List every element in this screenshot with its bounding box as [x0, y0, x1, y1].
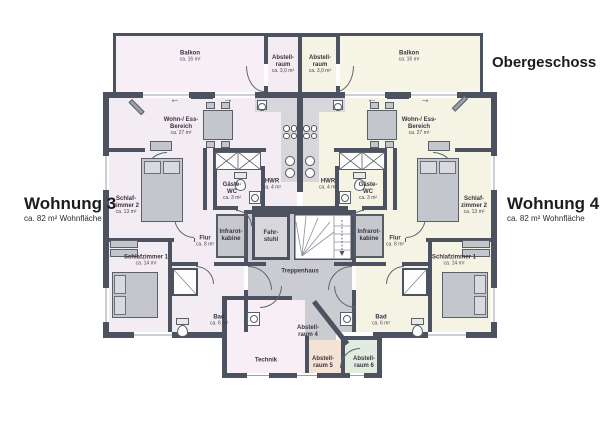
balkon-left-fill	[116, 36, 264, 92]
balkon-right-fill	[337, 36, 480, 92]
sideboard	[150, 141, 172, 151]
pillow	[420, 161, 437, 174]
chair	[206, 102, 215, 109]
wall-segment	[222, 332, 227, 378]
room-label-gaeste-wc-left: Gäste- WCca. 3 m²	[219, 182, 245, 202]
wardrobe-icon	[215, 152, 261, 170]
washer-icon	[340, 312, 353, 326]
window	[491, 156, 497, 190]
window	[143, 92, 189, 98]
apartment-area: ca. 82 m² Wohnfläche	[24, 214, 116, 223]
sink-icon	[285, 154, 295, 180]
room-label-abstellraum-top-left: Abstell-raumca. 3,0 m²	[270, 55, 296, 75]
sink-icon	[305, 154, 315, 180]
room-label-schlafzimmer1-right: Schlafzimmer 1ca. 14 m²	[426, 255, 482, 268]
page-title: Obergeschoss	[492, 54, 596, 71]
wall-segment	[109, 148, 145, 152]
wall-segment	[393, 148, 397, 210]
room-label-hwr-left: HWRca. 4 m²	[258, 179, 286, 192]
wall-segment	[113, 33, 116, 94]
dining-table	[203, 110, 233, 140]
window	[428, 332, 466, 338]
closet	[462, 240, 490, 248]
wall-segment	[297, 92, 303, 192]
toilet-icon	[176, 318, 189, 337]
door-gap	[198, 262, 214, 266]
room-label-gaeste-wc-right: Gäste- WCca. 3 m²	[355, 182, 381, 202]
room-label-bad-right: Badca. 6 m²	[368, 315, 394, 328]
stove-icon	[303, 125, 317, 139]
room-label-balkon-right: Balkonca. 16 m²	[384, 51, 434, 64]
door-gap	[264, 64, 268, 86]
room-label-abstellraum5: Abstell-raum 5	[309, 356, 337, 370]
pillow	[163, 161, 180, 174]
closet	[110, 240, 138, 248]
slide-arrow-right: →	[420, 95, 430, 106]
room-label-wohn-ess-right: Wohn-/ Ess-Bereichca. 27 m²	[396, 117, 442, 137]
window	[345, 92, 385, 98]
chair	[221, 141, 230, 148]
cooktop-icon	[333, 100, 343, 110]
wall-segment	[203, 148, 207, 210]
room-label-abstellraum-top-right: Abstell-raumca. 3,0 m²	[307, 55, 333, 75]
shower-icon	[172, 268, 198, 296]
cooktop-icon	[257, 100, 267, 110]
window	[215, 92, 255, 98]
pillow	[114, 296, 126, 315]
washer-icon	[247, 312, 260, 326]
washer-icon	[249, 191, 261, 204]
wall-segment	[298, 33, 302, 94]
stove-icon	[283, 125, 297, 139]
slide-arrow-left: ←	[367, 95, 377, 106]
room-label-infrarot-right: Infrarot-kabine	[355, 229, 383, 243]
room-label-bad-left: Badca. 6 m²	[206, 315, 232, 328]
wardrobe-icon	[339, 152, 385, 170]
room-label-fahrstuhl: Fahr-stuhl	[259, 230, 283, 244]
chair	[385, 102, 394, 109]
room-label-hwr-right: HWRca. 4 m²	[314, 179, 342, 192]
room-label-abstellraum4: Abstell-raum 4	[293, 325, 323, 339]
chair	[206, 141, 215, 148]
room-label-schlafzimmer1-left: Schlafzimmer 1ca. 14 m²	[118, 255, 174, 268]
pillow	[439, 161, 456, 174]
wall-segment	[222, 296, 292, 300]
chair	[370, 141, 379, 148]
sideboard	[428, 141, 450, 151]
pillow	[474, 296, 486, 315]
window	[297, 373, 317, 378]
apartment-area: ca. 82 m² Wohnfläche	[507, 214, 599, 223]
pillow	[144, 161, 161, 174]
window	[491, 288, 497, 322]
room-label-abstellraum6: Abstell-raum 6	[350, 356, 378, 370]
room-label-flur-left: Flurca. 8 m²	[192, 236, 218, 249]
window	[411, 92, 457, 98]
window	[134, 332, 172, 338]
toilet-icon	[411, 318, 424, 337]
room-label-infrarot-left: Infrarot-kabine	[217, 229, 245, 243]
wall-segment	[335, 33, 483, 36]
room-label-schlafzimmer2-right: Schlaf-zimmer 2ca. 13 m²	[457, 196, 491, 216]
slide-arrow-left: ←	[170, 95, 180, 106]
room-label-wohn-ess-left: Wohn-/ Ess-Bereichca. 27 m²	[158, 117, 204, 137]
wall-segment	[113, 33, 265, 36]
door-gap	[174, 238, 194, 242]
door-gap	[406, 238, 426, 242]
room-label-treppenhaus: Treppenhaus	[265, 268, 335, 275]
apartment-name: Wohnung 4	[507, 195, 599, 214]
apartment-label-wohnung-3: Wohnung 3 ca. 82 m² Wohnfläche	[24, 195, 116, 223]
door-gap	[238, 206, 252, 210]
window	[350, 373, 364, 378]
wall-segment	[480, 33, 483, 94]
room-label-flur-right: Flurca. 8 m²	[382, 236, 408, 249]
room-label-balkon-left: Balkonca. 16 m²	[165, 51, 215, 64]
room-label-technik: Technik	[246, 357, 286, 364]
wall-segment	[264, 33, 340, 37]
slide-arrow-right: →	[223, 95, 233, 106]
pillow	[474, 275, 486, 294]
wall-segment	[387, 92, 409, 99]
window	[103, 156, 109, 190]
dining-table	[367, 110, 397, 140]
washer-icon	[339, 191, 351, 204]
shower-icon	[402, 268, 428, 296]
wall-segment	[191, 92, 213, 99]
pillow	[114, 275, 126, 294]
wall-segment	[455, 148, 491, 152]
window	[103, 288, 109, 322]
window	[247, 373, 269, 378]
chair	[385, 141, 394, 148]
apartment-label-wohnung-4: Wohnung 4 ca. 82 m² Wohnfläche	[507, 195, 599, 223]
apartment-name: Wohnung 3	[24, 195, 116, 214]
stairs-icon	[294, 214, 352, 260]
floor-plan: ← → ← → Balkonca. 16 m² Balkonca. 16 m² …	[0, 0, 600, 424]
